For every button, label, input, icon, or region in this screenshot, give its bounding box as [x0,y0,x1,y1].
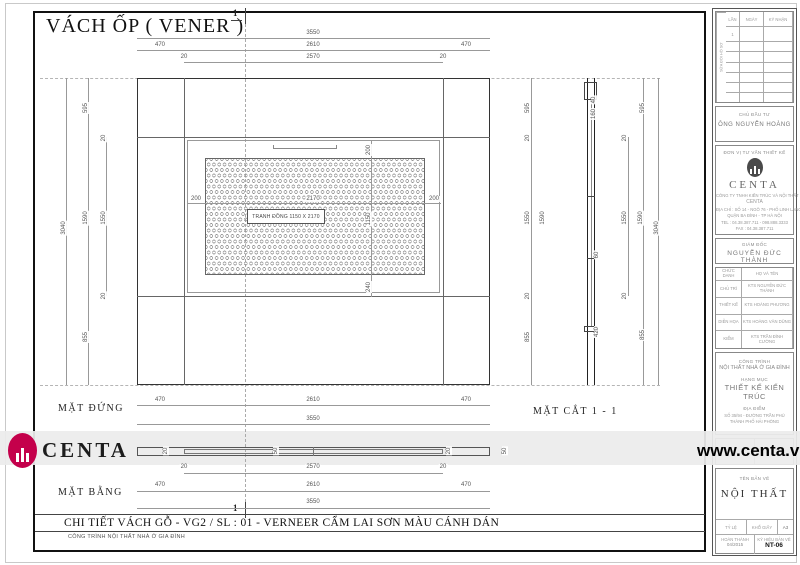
dim-label: 1550 [525,210,531,225]
dim-label: 200 [428,196,440,202]
drawing-area: VÁCH ỐP ( VENER ) 1 1 TRANH ĐỒNG 1150 X … [0,0,800,565]
dim-label: 470 [154,482,166,488]
dim-label: 2610 [305,397,320,403]
dim-label: 20 [163,447,169,456]
project-line: CÔNG TRÌNH NỘI THẤT NHÀ Ở GIA ĐÌNH [68,534,185,540]
dim-label: 2610 [305,482,320,488]
dim-label: 50 [502,447,508,456]
dim-label: 1590 [540,210,546,225]
watermark-brand: CENTA [8,433,129,468]
centa-logo-icon [8,433,37,468]
footer-rule [35,514,705,515]
dim-label: 20 [446,447,452,456]
dim-label: 3550 [305,499,320,505]
dim-label: 60 [594,251,600,260]
dim-label: 20 [101,134,107,143]
dim-label: 200 [366,144,372,156]
dim-label: 855 [525,331,531,343]
watermark-site-text: www.centa.vn [697,441,800,461]
dim-label: 20 [180,464,189,470]
dim-label: 3040 [61,220,67,235]
plan-label: MẶT BẰNG [58,487,123,498]
dim-label: 20 [180,54,189,60]
dim-label: 20 [525,292,531,301]
dim-label: 40 [591,96,597,105]
dim-label: 595 [83,102,89,114]
dim-label: 2170 [305,196,320,202]
dim-label: 1590 [638,210,644,225]
dim-label: 3550 [305,416,320,422]
dim-label: 470 [154,42,166,48]
detail-title: CHI TIẾT VÁCH GỖ - VG2 / SL : 01 - VERNE… [64,517,499,529]
dim-label: 20 [525,134,531,143]
dim-label: 855 [83,331,89,343]
dim-label: 470 [460,482,472,488]
dim-label: 1150 [366,212,372,227]
dim-label: 470 [154,397,166,403]
dim-label: 20 [101,292,107,301]
dim-layer: 3550470261047020257020470261047035502025… [0,0,800,565]
dim-label: 20 [622,292,628,301]
dim-label: 3550 [305,30,320,36]
section-label: MẶT CẮT 1 - 1 [533,406,618,417]
dim-label: 160 [591,108,597,120]
dim-label: 855 [640,329,646,341]
watermark-site: www.centa.vn [697,441,800,461]
dim-label: 3040 [654,220,660,235]
dim-label: 595 [525,102,531,114]
dim-label: 2570 [305,54,320,60]
dim-label: 20 [439,54,448,60]
dim-label: 240 [366,281,372,293]
watermark-brand-text: CENTA [42,438,129,463]
footer-rule [35,531,705,532]
dim-label: 470 [460,42,472,48]
dim-label: 200 [190,196,202,202]
dim-label: 595 [640,102,646,114]
drawing-sheet: SỬA ĐỔI HỒ SƠ LẦN NGÀY KÝ NHẬN 1 CHỦ ĐẦU… [0,0,800,565]
dim-label: 2570 [305,464,320,470]
dim-label: 420 [594,326,600,338]
dim-label: 470 [460,397,472,403]
dim-label: 20 [439,464,448,470]
dim-label: 1550 [622,210,628,225]
dim-label: 1590 [83,210,89,225]
dim-label: 1550 [101,210,107,225]
dim-label: 20 [622,134,628,143]
dim-label: 2610 [305,42,320,48]
dim-label: 50 [273,447,279,456]
elevation-label: MẶT ĐỨNG [58,403,124,414]
